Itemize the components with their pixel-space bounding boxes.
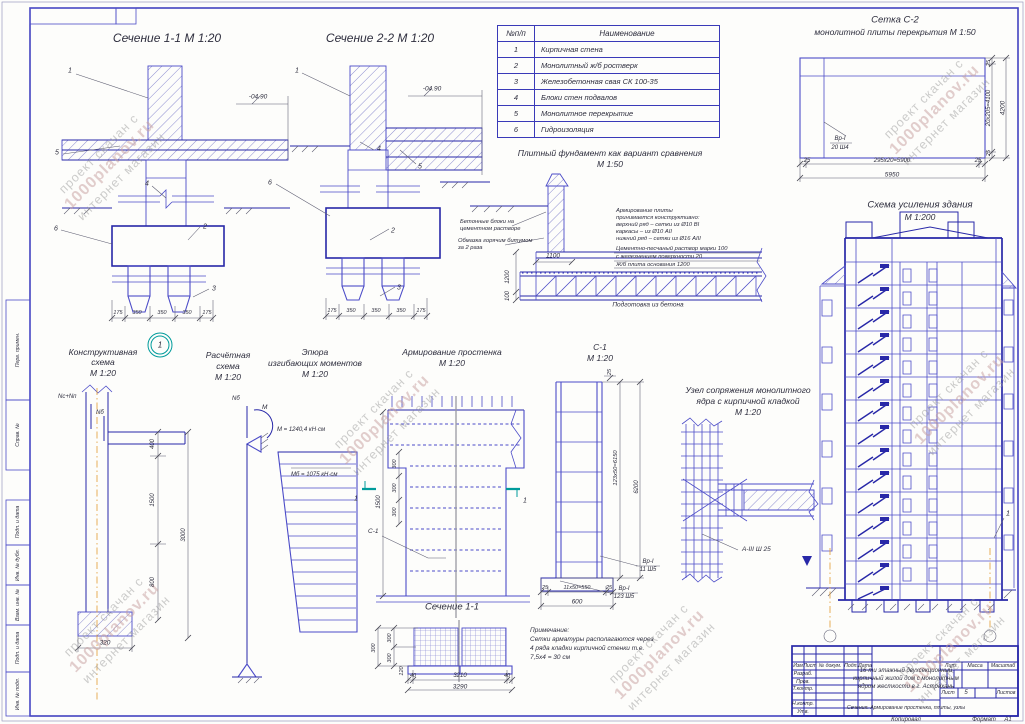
callout: 6	[268, 180, 272, 187]
force-label: Nб	[232, 396, 240, 402]
table-row: 3 Железобетонная свая СК 100-35	[498, 73, 719, 89]
building-elevation-linework	[802, 212, 1016, 642]
dim: 350	[182, 310, 191, 316]
pier-scale: М 1:20	[439, 358, 465, 368]
dim: 25	[986, 150, 992, 156]
dim: 175	[202, 310, 211, 316]
node-scale: М 1:20	[735, 407, 761, 417]
node-title: ядра с кирпичной кладкой	[696, 396, 799, 406]
note-line: Подготовка из бетона	[612, 302, 683, 309]
load-label: Nс+Nп	[58, 394, 76, 400]
cons-scale: М 1:20	[90, 368, 116, 378]
moment-value: Мб = 1075 кН·см	[291, 472, 338, 478]
note-line: за 2 раза	[458, 245, 482, 251]
table-row: 5 Монолитное перекрытие	[498, 105, 719, 121]
rebar-label: 123 Ш5	[614, 594, 635, 600]
stamp-title: ядром жесткости в г. Астрахань	[858, 684, 954, 690]
rebar-label: 20 Ш4	[831, 145, 848, 151]
section-1-1-title: Сечение 1-1 М 1:20	[113, 31, 221, 45]
stamp-sheet-number: 5	[964, 690, 967, 696]
note-line: Бетонные блоки на	[460, 219, 514, 225]
callout: 3	[212, 286, 216, 293]
note-line: верхний ряд – сетки из Ø10 ВI	[616, 222, 699, 228]
dim: 11х50=550	[564, 585, 591, 591]
node-title: Узел сопряжения монолитного	[685, 385, 810, 395]
stamp-scale: Масштаб	[991, 663, 1015, 669]
load-label: Nб	[96, 410, 104, 416]
dim: 1200	[505, 270, 511, 283]
c1-scale: М 1:20	[587, 353, 613, 363]
dim: 5950	[885, 172, 899, 179]
note-line: с железнением поверхности 20	[616, 254, 702, 260]
dim: 1500	[376, 495, 382, 508]
level-mark: -04.90	[423, 86, 441, 93]
note-line: цементном растворе	[460, 226, 520, 232]
stamp-col: Изм	[793, 663, 803, 669]
dim: 20х205=4100	[986, 90, 992, 127]
edge-label: Подп. и дата	[15, 506, 21, 538]
edge-label: Инв. № дубл.	[15, 549, 21, 581]
dim: 3000	[181, 528, 187, 541]
note-line: Армирование плиты	[616, 208, 673, 214]
callout: 6	[54, 226, 58, 233]
calc-title: схема	[216, 361, 239, 371]
table-header: №п/п Наименование	[498, 26, 719, 41]
section-2-2-title: Сечение 2-2 М 1:20	[326, 31, 434, 45]
ep-title: изгибающих моментов	[268, 358, 362, 368]
edge-label: Подп. и дата	[15, 632, 21, 664]
drawing-sheet: path,rect,line,polyline,polygon,circle{f…	[0, 0, 1025, 724]
section-1-1-linework	[61, 66, 290, 322]
callout: 1	[295, 68, 299, 75]
junction-node-linework	[681, 418, 818, 582]
rebar-label: Вр-I	[834, 136, 845, 142]
note-line: каркасы – из Ø10 АII	[616, 229, 672, 235]
pier-title: Армирование простенка	[402, 347, 501, 357]
edge-label: Перв. примен.	[15, 333, 21, 367]
stamp-title: кирпичный жилой дом с монолитным	[853, 676, 959, 682]
dim: 25	[542, 585, 548, 591]
callout: 5	[55, 150, 59, 157]
dim: 800	[150, 577, 156, 587]
note-line: Сетки арматуры располагаются через	[530, 636, 654, 643]
note-line: нижний ряд – сетки из Ø16 АIII	[616, 236, 701, 242]
callout: 4	[377, 146, 381, 153]
stamp-col: Лист	[803, 663, 816, 669]
note-line: принимается конструктивно:	[616, 215, 699, 221]
rebar-label: А-III Ш 25	[742, 546, 771, 553]
stamp-row: Н.контр.	[792, 701, 814, 707]
stamp-row: Разраб.	[794, 671, 813, 677]
cons-title: схема	[91, 357, 114, 367]
rebar-label: Вр-I	[618, 586, 629, 592]
dim: 300	[387, 653, 393, 662]
plate-scale: М 1:50	[597, 159, 623, 169]
dim: 300	[392, 459, 398, 468]
edge-label: Взам. инв. №	[15, 589, 21, 621]
table-row: 1 Кирпичная стена	[498, 41, 719, 57]
ep-title: Эпюра	[302, 347, 328, 357]
dim: 100	[505, 291, 511, 301]
cut-mark: 1	[354, 496, 358, 503]
dim: 300	[392, 483, 398, 492]
mesh-c2-subtitle: монолитной плиты перекрытия М 1:50	[814, 27, 975, 37]
dim: 3290	[453, 684, 467, 691]
plate-title: Плитный фундамент как вариант сравнения	[518, 148, 703, 158]
mesh-section-linework	[375, 620, 515, 693]
table-row: 4 Блоки стен подвалов	[498, 89, 719, 105]
detail-mark: 1	[158, 341, 162, 350]
stamp-lit: Лит.	[945, 663, 957, 669]
stamp-kopiroval: Копировал	[891, 717, 921, 723]
moment-value: М = 1240,4 кН·см	[277, 427, 325, 433]
stamp-format: Формат	[972, 717, 996, 723]
edge-label: Справ. №	[15, 423, 21, 447]
dim: 1100	[546, 253, 560, 260]
stamp-subtitle: Сечения. Армирование простенка, плиты, у…	[847, 705, 965, 711]
cut-mark: 1	[523, 498, 527, 505]
dim: 350	[132, 310, 141, 316]
calc-scheme-linework	[232, 406, 273, 683]
dim: 320	[100, 640, 111, 647]
stamp-format-value: А1	[1004, 717, 1011, 723]
c1-title: С-1	[593, 342, 607, 352]
dim: 350	[396, 308, 405, 314]
dim: 600	[572, 599, 583, 606]
c1-carcass-linework	[538, 375, 660, 610]
callout: 2	[391, 228, 395, 235]
stamp-title: 16-ти этажный двухсекционный	[860, 668, 953, 674]
level-mark: -04.90	[249, 94, 267, 101]
note-line: Ж/б плита основания 1200	[616, 262, 690, 268]
dim: 300	[371, 643, 377, 652]
ep-scale: М 1:20	[302, 369, 328, 379]
moment-diagram-linework	[278, 452, 357, 632]
edge-label: Инв. № подл.	[15, 678, 21, 710]
table-row: 2 Монолитный ж/б ростверк	[498, 57, 719, 73]
callout: 4	[145, 181, 149, 188]
dim: 25	[986, 60, 992, 66]
mesh-section-title: Сечение 1-1	[425, 602, 479, 613]
stamp-sheets-label: Листов	[997, 690, 1016, 696]
building-title: Схема усиления здания	[867, 200, 972, 211]
dim: 295х20=5900	[874, 158, 911, 164]
building-scale: М 1:200	[905, 212, 936, 222]
callout: 2	[203, 224, 207, 231]
mesh-ref: С-1	[368, 528, 378, 535]
dim: 400	[150, 439, 156, 449]
table-row: 6 Гидроизоляция	[498, 121, 719, 137]
note-line: 7,5х4 = 30 см	[530, 654, 570, 661]
dim: 3210	[453, 673, 466, 679]
dim: 300	[387, 633, 393, 642]
note-line: 4 ряда кладки кирпичной стенки т.е.	[530, 645, 644, 652]
dim: 350	[157, 310, 166, 316]
constructive-scheme-linework	[75, 333, 191, 700]
stamp-col: № докум.	[819, 663, 842, 669]
dim: 4200	[1000, 101, 1007, 115]
dim: 350	[346, 308, 355, 314]
pier-reinforcement-linework	[362, 396, 530, 618]
callout: 1	[68, 68, 72, 75]
callout: 3	[397, 285, 401, 292]
rebar-label: Вр-I	[642, 559, 653, 565]
callout: 1	[1006, 509, 1010, 518]
dim: 25	[606, 585, 612, 591]
dim: 25	[975, 158, 982, 164]
stamp-row: Т.контр.	[793, 686, 814, 692]
dim: 40	[410, 673, 416, 679]
stamp-col: Подп.	[844, 663, 858, 669]
stamp-row: Утв.	[797, 709, 809, 715]
dim: 6200	[634, 480, 640, 493]
dim: 175	[113, 310, 122, 316]
note-line: Цементно-песчаный раствор марки 100	[616, 246, 727, 252]
dim: 175	[327, 308, 336, 314]
calc-title: Расчётная	[206, 350, 251, 360]
section-2-2-linework	[276, 66, 490, 320]
calc-scale: М 1:20	[215, 372, 241, 382]
dim: 1500	[150, 493, 156, 506]
callout: 5	[418, 164, 422, 171]
dim: 175	[416, 308, 425, 314]
stamp-row: Пров.	[796, 679, 810, 685]
dim: 25	[804, 158, 811, 164]
rebar-label: 11 Ш5	[640, 567, 657, 573]
cons-title: Конструктивная	[69, 347, 138, 357]
note-line: Примечание:	[530, 627, 569, 634]
mesh-c2-title: Сетка С-2	[871, 15, 919, 26]
dim: 300	[392, 507, 398, 516]
stamp-sheet-label: Лист	[941, 690, 954, 696]
note-line: Обмазка горячим битумом	[458, 238, 532, 244]
dim: 123х50=6150	[613, 450, 619, 485]
legend-table: №п/п Наименование 1 Кирпичная стена 2 Мо…	[497, 25, 720, 138]
dim: 25	[607, 369, 613, 375]
dim: 350	[371, 308, 380, 314]
dim: 40	[504, 673, 510, 679]
stamp-mass: Масса	[967, 663, 982, 669]
dim: 120	[399, 666, 405, 675]
moment-label: М	[262, 404, 267, 411]
